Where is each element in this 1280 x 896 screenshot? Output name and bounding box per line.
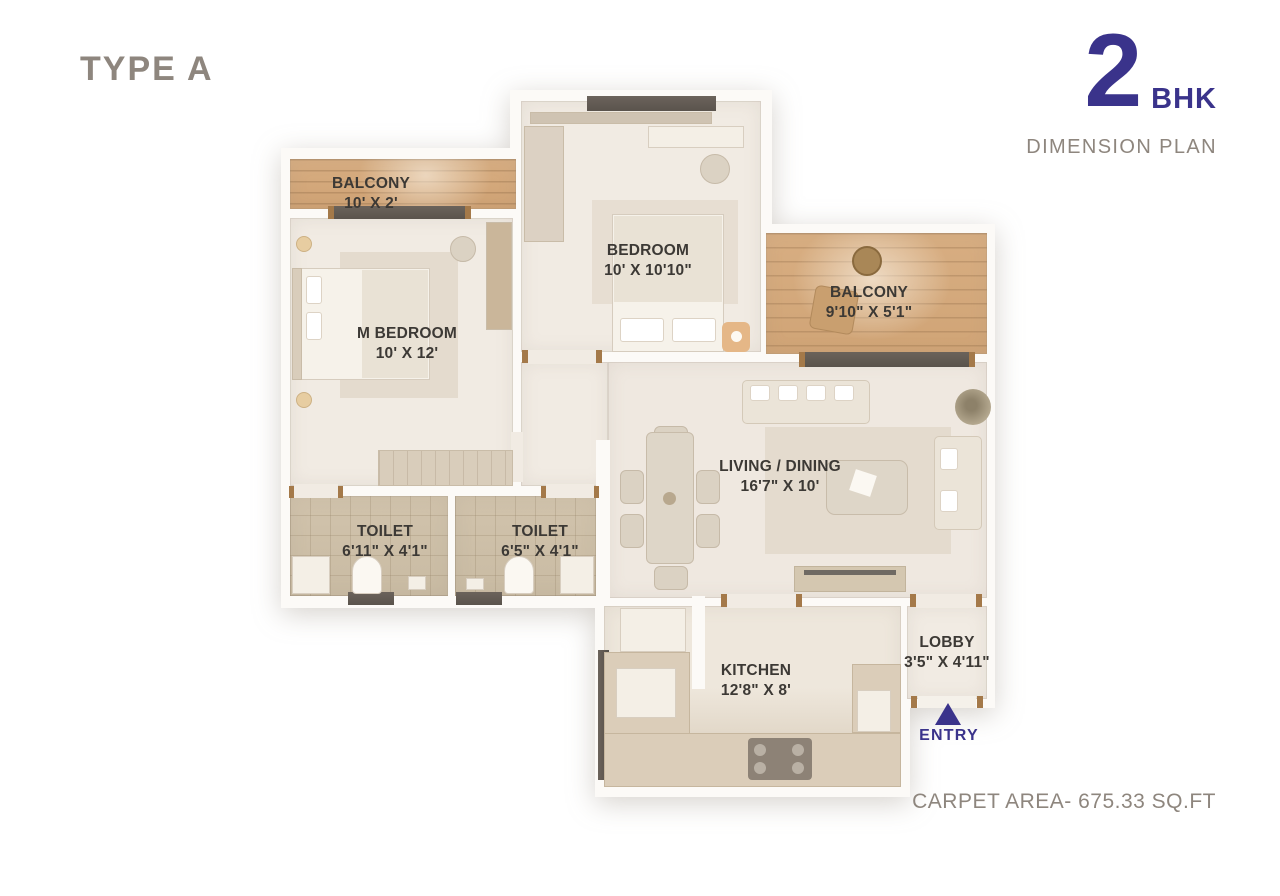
door-jamb — [976, 594, 982, 607]
washing-machine — [857, 690, 891, 732]
shower-tray — [292, 556, 330, 594]
tv-screen — [804, 570, 896, 575]
door-jamb — [796, 594, 802, 607]
door-jamb — [289, 486, 294, 498]
pillow — [620, 318, 664, 342]
floor-plan: BALCONY 10' X 2' M BEDROOM 10' X 12' BED… — [0, 0, 1280, 896]
door-jamb — [596, 350, 602, 363]
room-name: BEDROOM — [604, 241, 692, 261]
desk-chair — [700, 154, 730, 184]
door-jamb — [969, 352, 975, 367]
door-jamb — [911, 696, 917, 708]
door-opening-lobby — [916, 594, 976, 608]
wardrobe — [378, 450, 513, 486]
room-dims: 9'10" X 5'1" — [826, 303, 913, 323]
wardrobe — [530, 112, 712, 124]
room-name: TOILET — [342, 522, 428, 542]
door-jamb — [541, 486, 546, 498]
dining-chair — [696, 470, 720, 504]
carpet-area-text: CARPET AREA- 675.33 SQ.FT — [912, 790, 1216, 814]
vent-toilet-2 — [456, 592, 502, 605]
room-name: LIVING / DINING — [719, 457, 841, 477]
sofa-pillow — [834, 385, 854, 401]
plant-icon — [955, 389, 991, 425]
room-dims: 10' X 12' — [357, 344, 457, 364]
room-label-living-dining: LIVING / DINING 16'7" X 10' — [719, 457, 841, 497]
bed-headboard — [292, 268, 302, 380]
door-jamb — [910, 594, 916, 607]
room-dims: 16'7" X 10' — [719, 477, 841, 497]
desk — [486, 222, 512, 330]
room-label-balcony-right: BALCONY 9'10" X 5'1" — [826, 283, 913, 323]
desk-chair — [450, 236, 476, 262]
window-bedroom — [587, 96, 716, 111]
sofa-pillow — [778, 385, 798, 401]
door-jamb — [594, 486, 599, 498]
side-rug-center — [731, 331, 742, 342]
hob-burner — [792, 762, 804, 774]
door-opening-kitchen — [727, 594, 796, 608]
washbasin — [408, 576, 426, 590]
room-label-balcony-top: BALCONY 10' X 2' — [332, 174, 410, 214]
sink — [616, 668, 676, 718]
door-opening-bedroom — [528, 350, 596, 364]
wall-stub-kitchen — [692, 596, 705, 689]
room-name: BALCONY — [826, 283, 913, 303]
hob-burner — [754, 762, 766, 774]
dining-chair — [654, 566, 688, 590]
door-jamb — [465, 206, 471, 219]
room-dims: 6'5" X 4'1" — [501, 542, 579, 562]
pillow — [306, 312, 322, 340]
corridor — [521, 362, 608, 486]
entry-label: ENTRY — [919, 727, 979, 745]
door-jamb — [799, 352, 805, 367]
fridge — [620, 608, 686, 652]
room-name: LOBBY — [904, 633, 990, 653]
hob-burner — [754, 744, 766, 756]
room-label-toilet-2: TOILET 6'5" X 4'1" — [501, 522, 579, 562]
pillow — [672, 318, 716, 342]
room-label-kitchen: KITCHEN 12'8" X 8' — [721, 661, 791, 701]
room-name: M BEDROOM — [357, 324, 457, 344]
wall-stub-dining — [596, 440, 610, 598]
door-jamb — [522, 350, 528, 363]
sliding-door-living-balcony — [805, 352, 969, 367]
room-name: TOILET — [501, 522, 579, 542]
room-dims: 12'8" X 8' — [721, 681, 791, 701]
door-opening-toilet-1 — [294, 484, 338, 498]
sofa-pillow — [806, 385, 826, 401]
pillow — [306, 276, 322, 304]
sofa-pillow — [750, 385, 770, 401]
room-label-toilet-1: TOILET 6'11" X 4'1" — [342, 522, 428, 562]
room-label-bedroom: BEDROOM 10' X 10'10" — [604, 241, 692, 281]
sofa-pillow — [940, 490, 958, 512]
room-label-lobby: LOBBY 3'5" X 4'11" — [904, 633, 990, 673]
bedside-lamp — [296, 392, 312, 408]
dining-chair — [696, 514, 720, 548]
sofa-pillow — [940, 448, 958, 470]
bedside-lamp — [296, 236, 312, 252]
washbasin — [466, 578, 484, 590]
hob-burner — [792, 744, 804, 756]
room-label-m-bedroom: M BEDROOM 10' X 12' — [357, 324, 457, 364]
floor-plan-page: TYPE A 2 BHK DIMENSION PLAN — [0, 0, 1280, 896]
door-jamb — [338, 486, 343, 498]
room-name: BALCONY — [332, 174, 410, 194]
room-dims: 10' X 10'10" — [604, 261, 692, 281]
door-opening-toilet-2 — [546, 484, 594, 498]
dining-chair — [620, 514, 644, 548]
room-name: KITCHEN — [721, 661, 791, 681]
plant-icon — [852, 246, 882, 276]
room-dims: 6'11" X 4'1" — [342, 542, 428, 562]
dining-chair — [620, 470, 644, 504]
entry-arrow-icon — [935, 703, 961, 725]
door-jamb — [977, 696, 983, 708]
room-dims: 10' X 2' — [332, 194, 410, 214]
room-dims: 3'5" X 4'11" — [904, 653, 990, 673]
desk — [648, 126, 744, 148]
door-jamb — [721, 594, 727, 607]
dining-centerpiece — [663, 492, 676, 505]
wardrobe — [524, 126, 564, 242]
